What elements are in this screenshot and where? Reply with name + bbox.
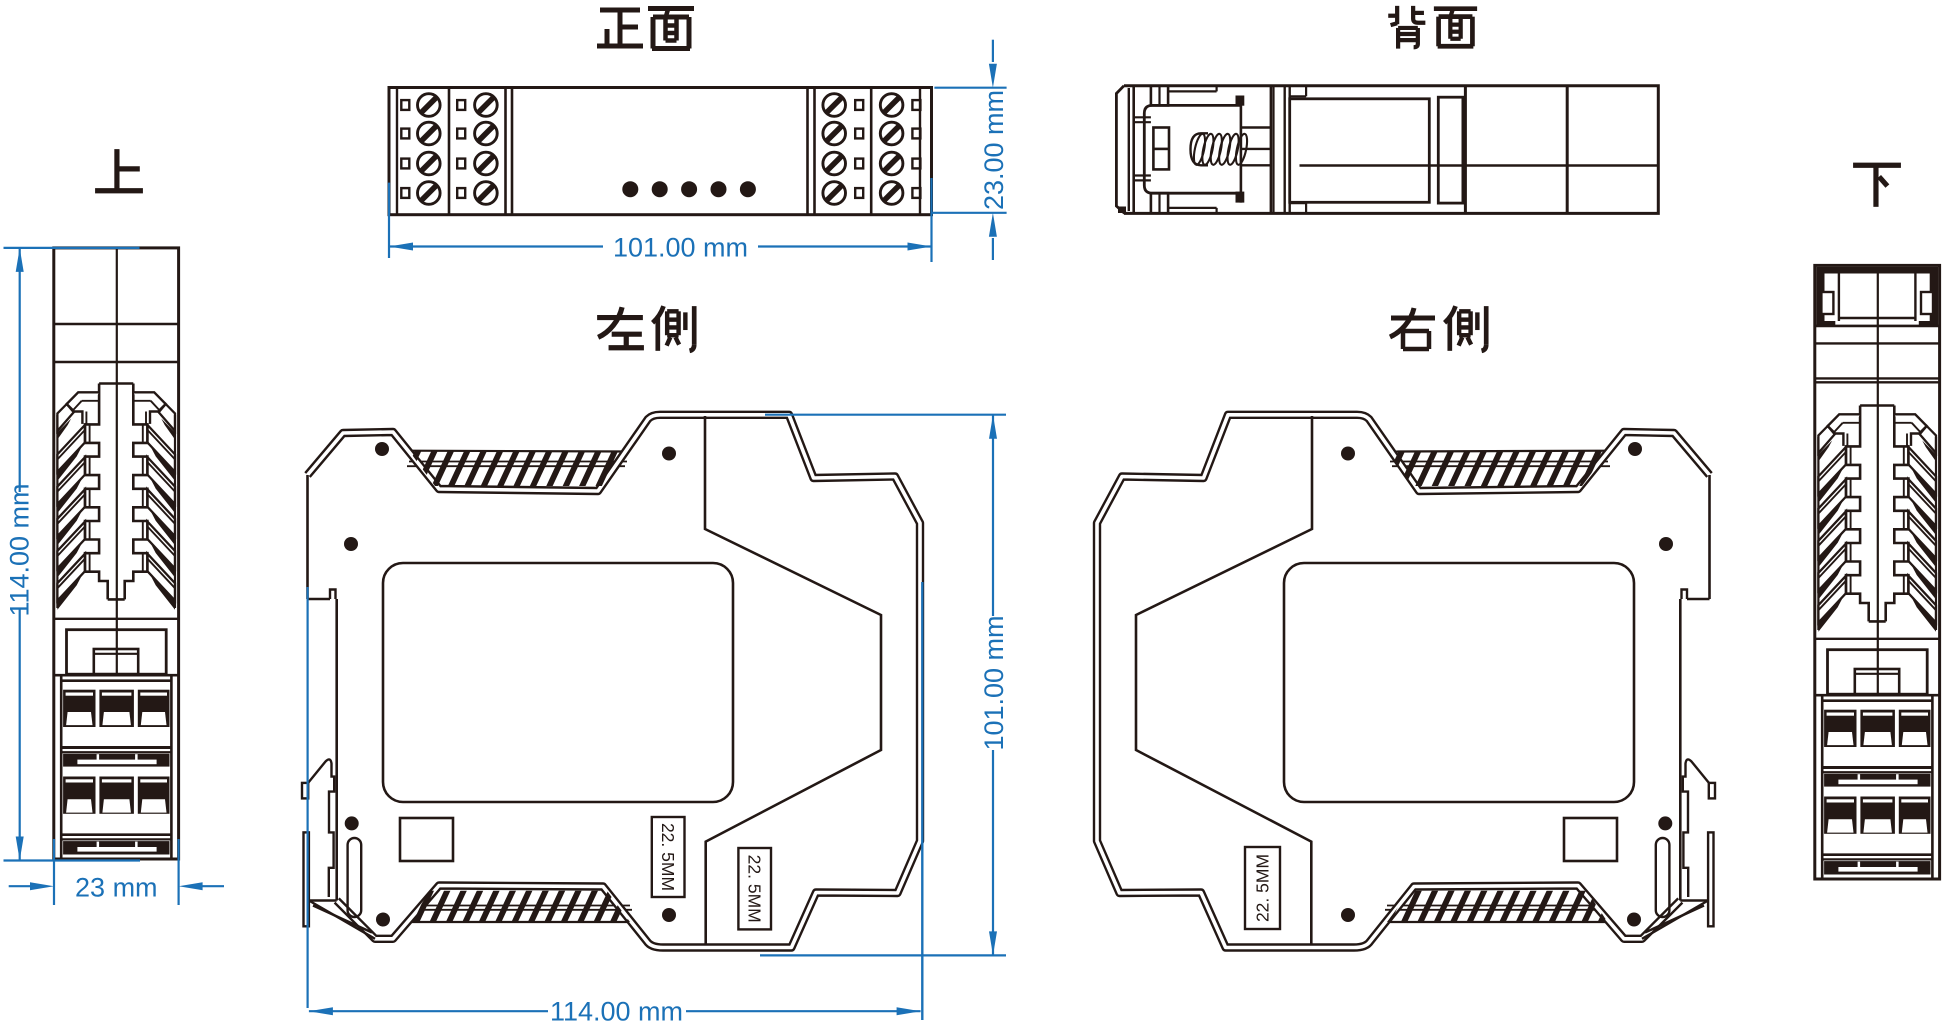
svg-text:22. 5MM: 22. 5MM — [745, 855, 765, 923]
svg-text:101.00 mm: 101.00 mm — [613, 233, 748, 263]
svg-text:22. 5MM: 22. 5MM — [658, 823, 678, 891]
svg-text:114.00 mm: 114.00 mm — [5, 483, 35, 616]
svg-text:23 mm: 23 mm — [75, 873, 158, 903]
svg-text:23.00 mm: 23.00 mm — [979, 90, 1009, 210]
svg-text:114.00 mm: 114.00 mm — [550, 997, 683, 1027]
svg-text:22. 5MM: 22. 5MM — [1253, 854, 1273, 922]
svg-text:101.00 mm: 101.00 mm — [979, 615, 1009, 750]
